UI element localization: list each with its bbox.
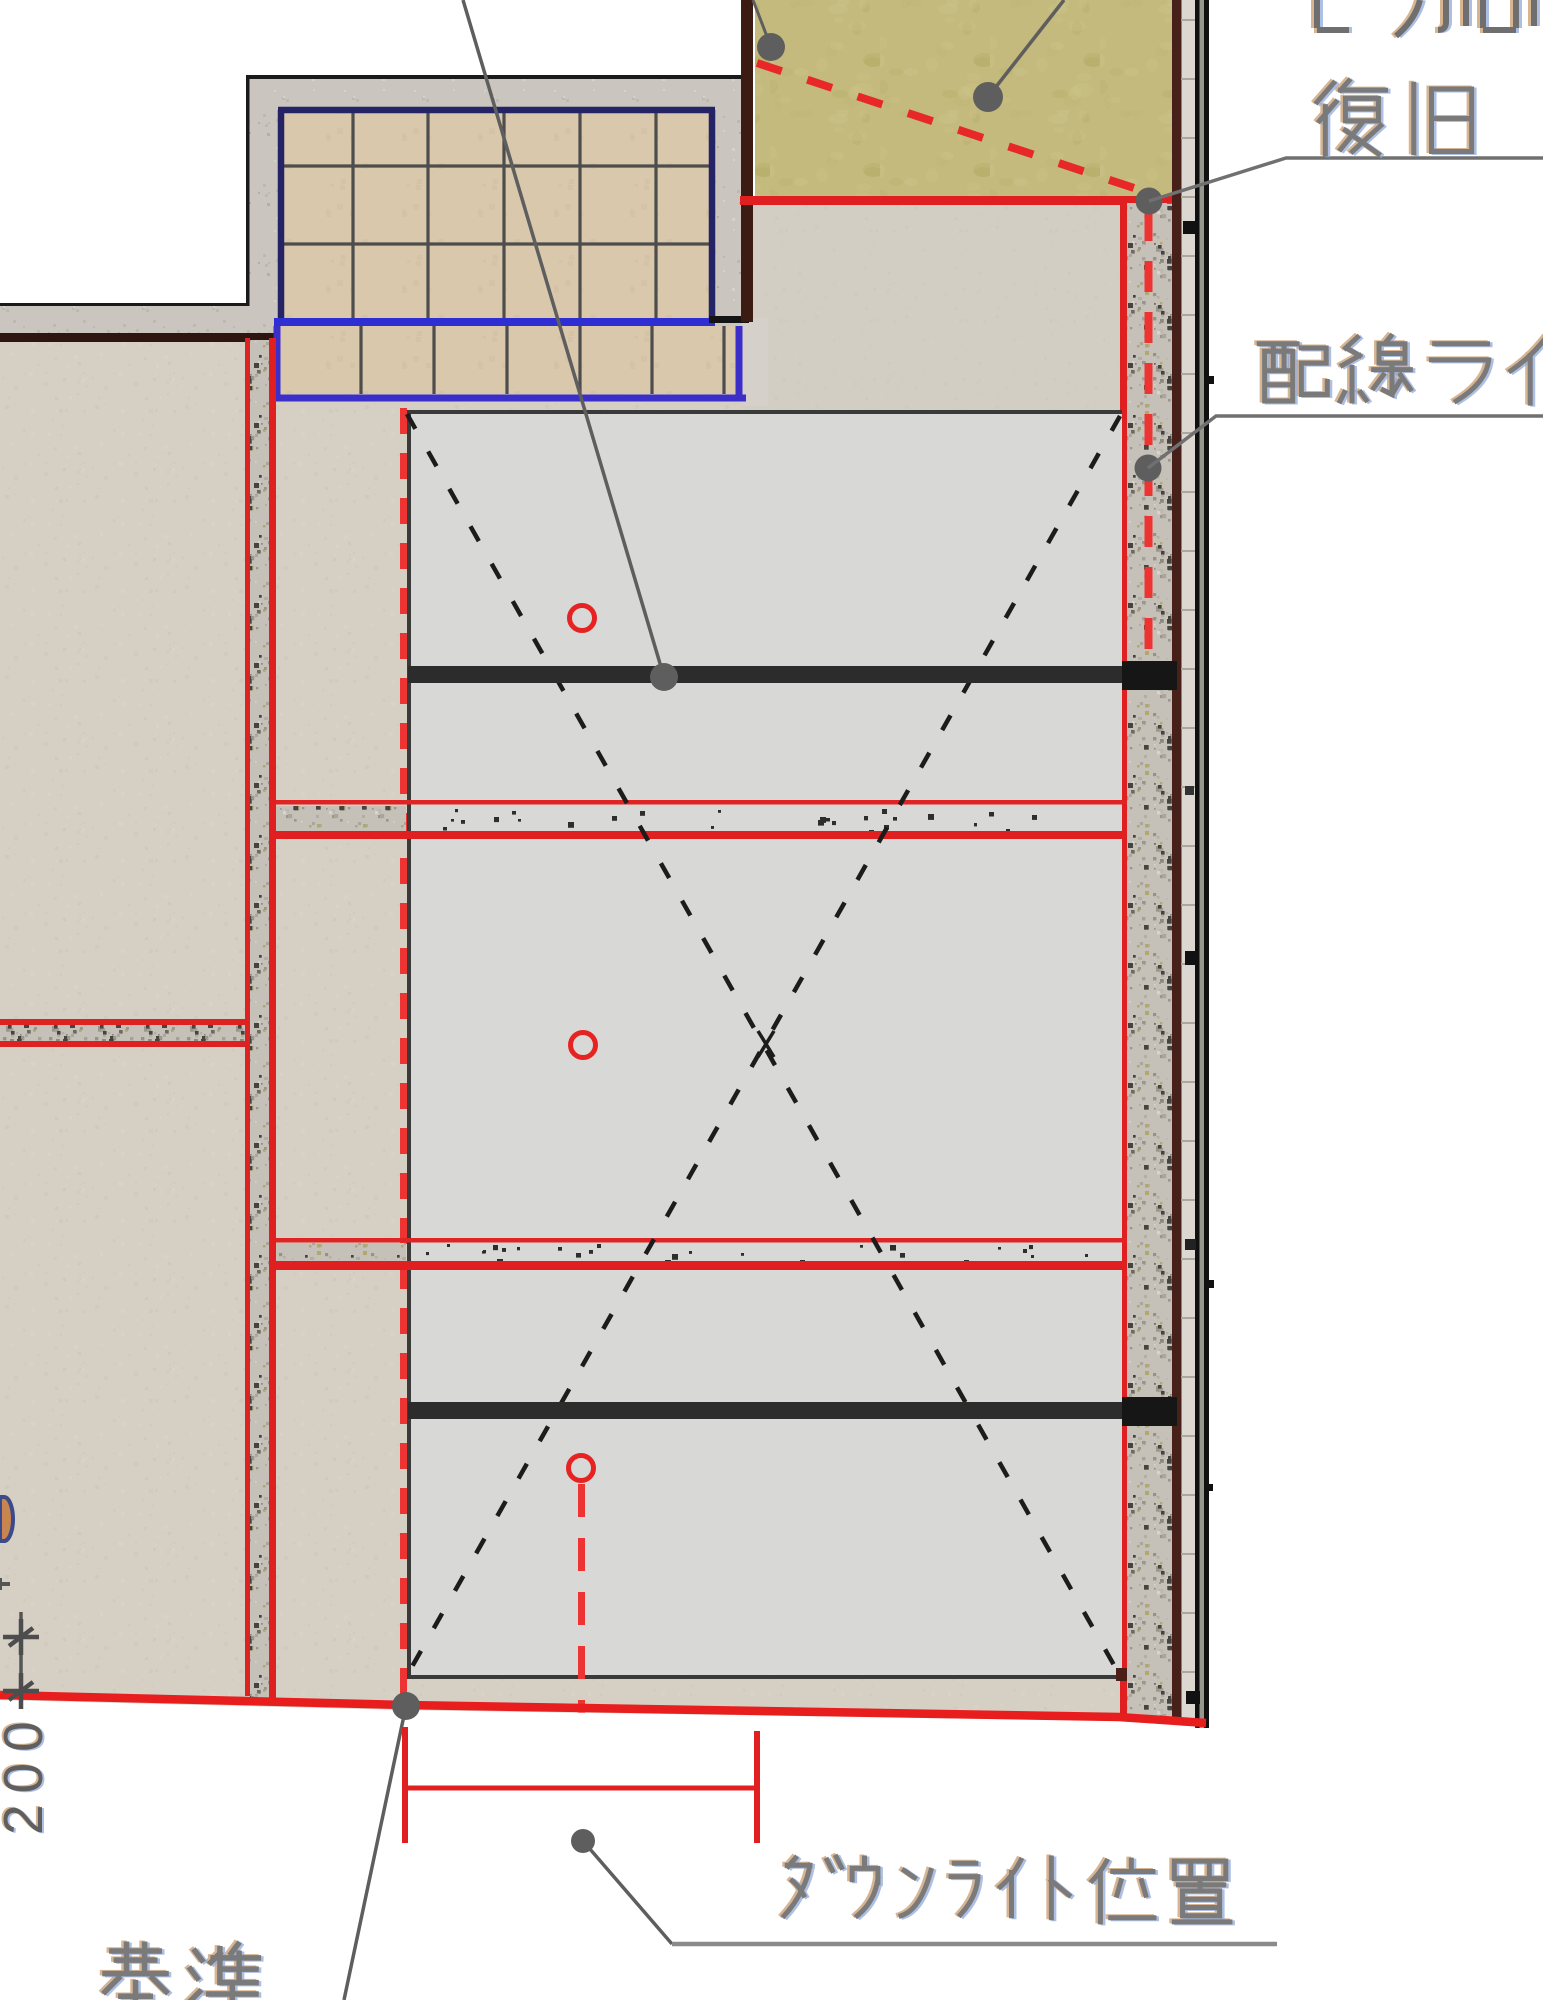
- svg-text:200: 200: [0, 1710, 54, 1835]
